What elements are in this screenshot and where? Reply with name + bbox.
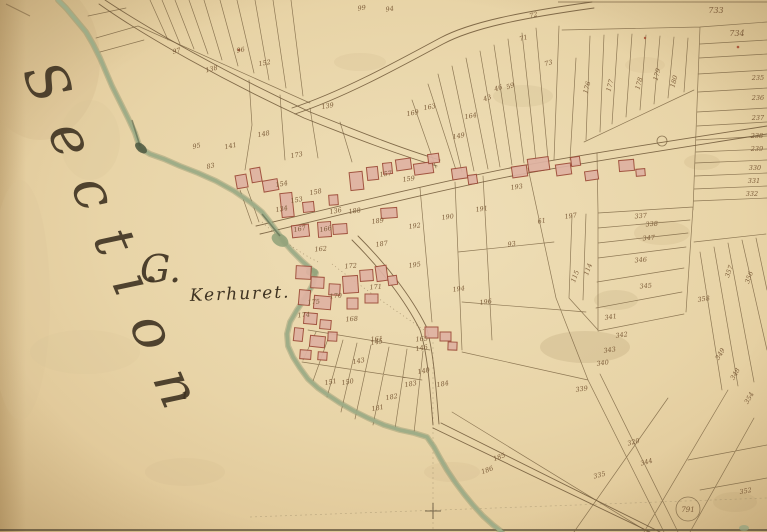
parcel-number: 193 xyxy=(510,182,523,192)
parcel-number: 162 xyxy=(314,244,327,253)
parcel-number: 96 xyxy=(236,45,246,54)
parcel-number: 339 xyxy=(575,384,588,394)
parcel-number: 196 xyxy=(479,297,492,307)
svg-text:791: 791 xyxy=(681,506,694,514)
cadastral-map: Section G. Kerhuret. 1 791 9713896152951… xyxy=(0,0,767,532)
parcel-number: 343 xyxy=(603,345,616,355)
parcel-number: 347 xyxy=(642,233,656,242)
parcel-number: 159 xyxy=(402,174,415,184)
parcel-number: 358 xyxy=(697,294,710,304)
parcel-number: 172 xyxy=(344,261,357,270)
parcel-number: 93 xyxy=(507,239,516,248)
parcel-number: 165 xyxy=(415,334,428,343)
parcel-number: 83 xyxy=(206,161,216,171)
parcel-number: 171 xyxy=(369,282,382,291)
parcel-number: 189 xyxy=(371,216,384,226)
section-letter-label: G. xyxy=(140,247,181,291)
parcel-number: 191 xyxy=(475,204,488,214)
parcel-number: 195 xyxy=(408,260,421,270)
lone-mark-label: 1 xyxy=(181,391,188,402)
parcel-number: 190 xyxy=(441,212,454,222)
parcel-number: 346 xyxy=(634,255,647,264)
cadastral-map-canvas: Section G. Kerhuret. 1 791 9713896152951… xyxy=(0,0,767,532)
parcel-number: 235 xyxy=(751,74,764,82)
parcel-number: 734 xyxy=(729,29,744,38)
parcel-number: 340 xyxy=(596,358,609,368)
parcel-number: 338 xyxy=(645,219,658,228)
parcel-number: 345 xyxy=(639,281,652,290)
parcel-number: 168 xyxy=(345,314,358,323)
parcel-number: 94 xyxy=(385,4,394,13)
parcel-number: 192 xyxy=(408,221,421,231)
parcel-number: 237 xyxy=(751,114,765,122)
place-name-label: Kerhuret. xyxy=(188,282,290,306)
parcel-number: 332 xyxy=(746,190,758,198)
parcel-number: 238 xyxy=(750,132,763,140)
parcel-number: 194 xyxy=(452,284,465,294)
parcel-number: 239 xyxy=(750,145,763,153)
parcel-number: 330 xyxy=(749,164,761,172)
parcel-number: 331 xyxy=(748,177,760,185)
parcel-number: 95 xyxy=(192,141,202,151)
parcel-number: 170 xyxy=(329,291,342,300)
parcel-number: 236 xyxy=(751,94,764,102)
parcel-number: 161 xyxy=(370,334,383,343)
parcel-number: 337 xyxy=(634,211,648,220)
parcel-number: 733 xyxy=(708,6,723,15)
parcel-number: 188 xyxy=(348,206,361,216)
parcel-number: 174 xyxy=(297,310,310,319)
parcel-number: 61 xyxy=(537,216,546,225)
parcel-number: 175 xyxy=(307,297,320,306)
parcel-number: 342 xyxy=(615,330,628,340)
parcel-number: 99 xyxy=(357,3,366,12)
parcel-number: 341 xyxy=(604,312,617,322)
